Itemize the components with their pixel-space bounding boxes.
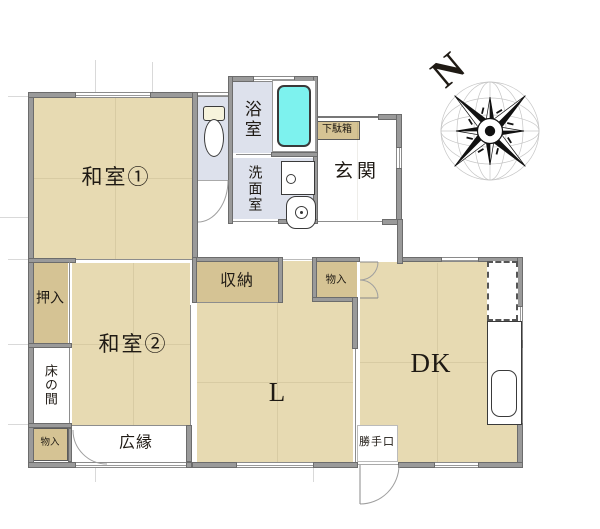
room-label-storage-center: 物入: [326, 274, 347, 285]
floor-plan: 和室① 和室② L DK 玄関 浴室 洗面室 収納 押入 床の間 物入 物入 広…: [0, 0, 600, 529]
room-label-shuno: 収納: [220, 274, 254, 291]
room-label-storage-left: 物入: [40, 439, 59, 449]
overlay-graphics: [0, 0, 600, 529]
room-label-washitsu2: 和室②: [99, 333, 168, 355]
room-label-oshiire: 押入: [36, 293, 64, 308]
room-label-washitsu1: 和室①: [82, 166, 151, 188]
room-label-hiroen: 広縁: [119, 436, 153, 453]
storage-door-arc-bottom: [360, 280, 378, 298]
room-label-bathroom: 浴室: [242, 100, 260, 140]
room-label-washroom: 洗面室: [246, 165, 261, 213]
room-label-genkan: 玄関: [334, 162, 380, 182]
back-door-arc: [360, 465, 399, 504]
room-label-getabako: 下駄箱: [322, 125, 352, 136]
storage-door-arc-top: [360, 262, 378, 280]
room-label-living: L: [269, 378, 286, 406]
room-label-tokonoma: 床の間: [43, 364, 57, 406]
veranda-door-arc: [73, 430, 107, 464]
room-label-dk: DK: [411, 349, 452, 377]
room-label-katteguchi: 勝手口: [359, 437, 395, 449]
toilet-door-arc: [198, 180, 228, 222]
